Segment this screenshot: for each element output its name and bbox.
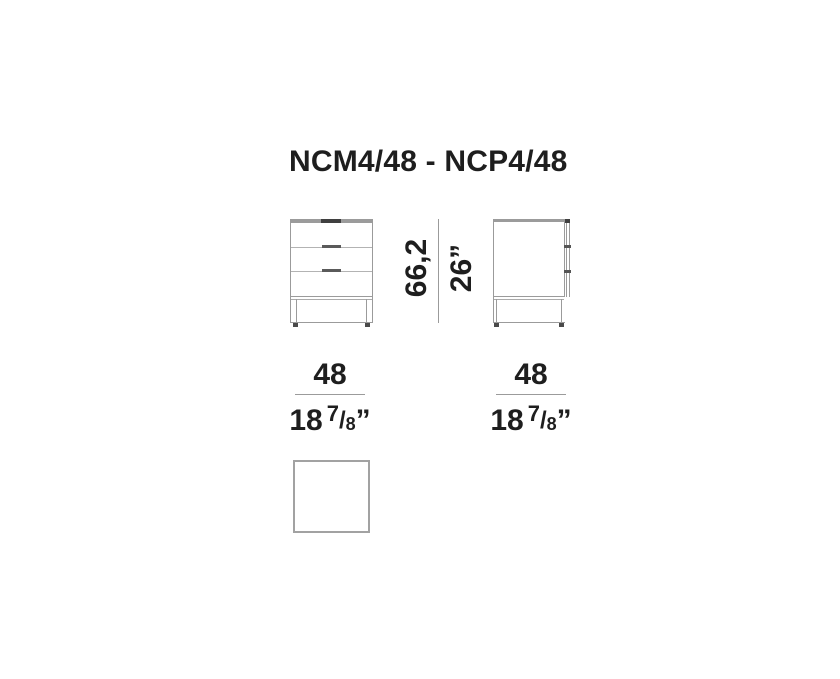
- page-title: NCM4/48 - NCP4/48: [289, 145, 568, 179]
- side-top-edge: [493, 219, 567, 222]
- side-body-right-edge: [564, 221, 565, 297]
- side-base-frame-top-line: [494, 299, 564, 300]
- front-base-right-leg-line: [366, 299, 367, 322]
- side-left-edge: [493, 221, 494, 323]
- drawer-handle: [322, 269, 341, 272]
- side-base-bottom-line: [493, 322, 565, 323]
- width-side-imperial: 187/8”: [461, 398, 601, 440]
- width-front-imperial: 187/8”: [260, 398, 400, 440]
- front-view-drawing: [290, 219, 373, 331]
- imperial-whole: 18: [490, 404, 523, 437]
- side-left-foot: [494, 323, 499, 327]
- top-view-drawing: [293, 460, 370, 533]
- fraction-denominator: 8: [547, 414, 557, 434]
- height-dimension-imperial: 26”: [447, 244, 477, 292]
- side-right-foot: [559, 323, 564, 327]
- front-right-foot: [365, 323, 370, 327]
- width-front-metric: 48: [260, 359, 400, 390]
- technical-drawing-page: NCM4/48 - NCP4/48 66,2 26”: [0, 0, 840, 679]
- height-dimension-metric: 66,2: [402, 239, 432, 297]
- fraction-numerator: 7: [528, 401, 540, 426]
- fraction-slash: /: [540, 407, 547, 434]
- dimension-separator-line: [496, 394, 566, 395]
- inch-mark: ”: [356, 404, 371, 437]
- fraction-numerator: 7: [327, 401, 339, 426]
- front-body-bottom-line: [290, 296, 373, 297]
- front-base-bottom-line: [290, 322, 373, 323]
- width-dimension-side: 48 187/8”: [461, 359, 601, 440]
- front-base-frame-top-line: [291, 299, 372, 300]
- inch-mark: ”: [557, 404, 572, 437]
- side-drawer-handle-tick: [564, 270, 571, 273]
- front-right-edge: [372, 222, 373, 323]
- dimension-separator-line: [295, 394, 365, 395]
- side-base-right-leg-line: [561, 299, 562, 322]
- front-base-left-leg-line: [296, 299, 297, 322]
- side-drawer-front-profile-line: [566, 223, 567, 297]
- front-left-foot: [293, 323, 298, 327]
- fraction-slash: /: [339, 407, 346, 434]
- side-view-drawing: [493, 219, 570, 331]
- width-side-metric: 48: [461, 359, 601, 390]
- side-drawer-handle-tick: [564, 245, 571, 248]
- imperial-whole: 18: [289, 404, 322, 437]
- fraction-denominator: 8: [346, 414, 356, 434]
- front-top-drawer-handle: [321, 219, 341, 223]
- side-body-bottom-line: [493, 296, 565, 297]
- side-drawer-front-profile-line: [569, 223, 570, 297]
- drawer-handle: [322, 245, 341, 248]
- side-base-left-leg-line: [496, 299, 497, 322]
- front-left-edge: [290, 222, 291, 323]
- height-dimension-line: [438, 219, 439, 323]
- width-dimension-front: 48 187/8”: [260, 359, 400, 440]
